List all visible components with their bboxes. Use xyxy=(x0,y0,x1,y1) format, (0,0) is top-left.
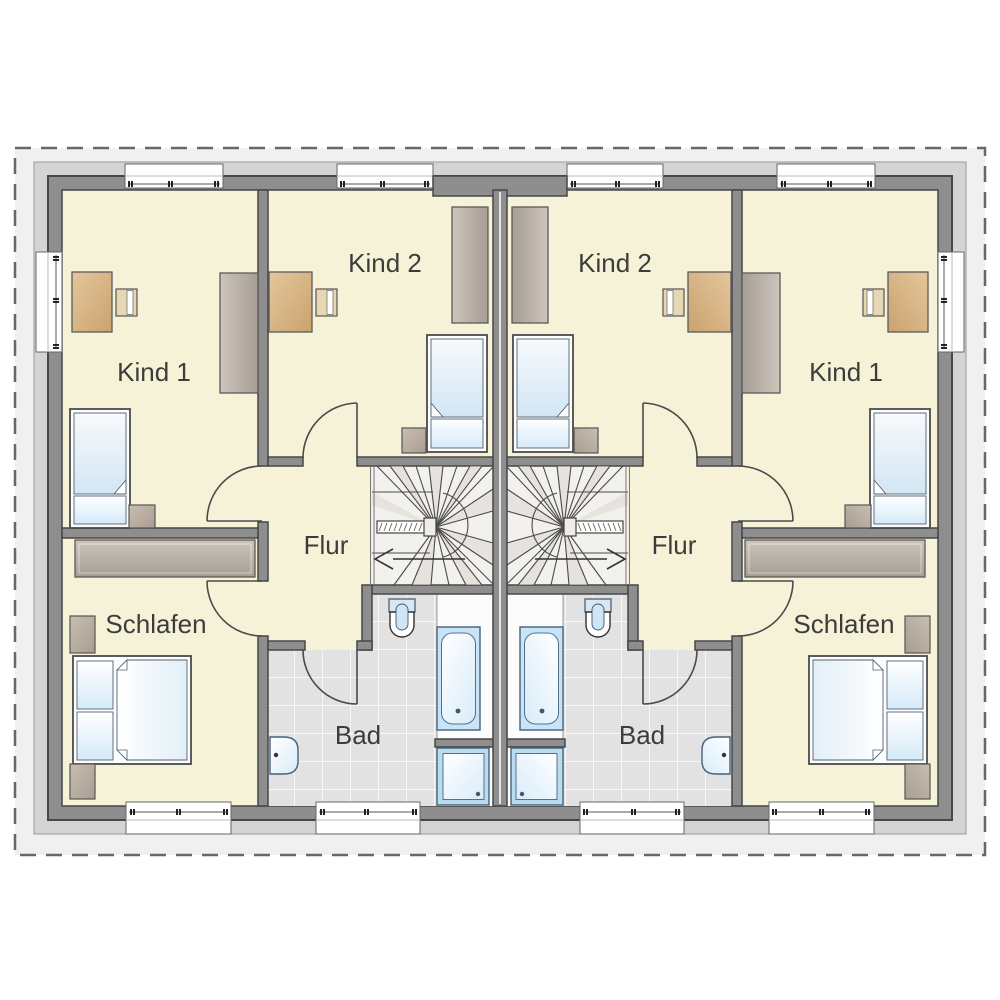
pillow xyxy=(77,661,113,709)
room-label-kind1-right: Kind 1 xyxy=(809,357,883,387)
room-label-schlafen-right: Schlafen xyxy=(793,609,894,639)
wardrobe-long xyxy=(75,540,255,577)
drain xyxy=(456,709,461,714)
room-label-bad-right: Bad xyxy=(619,720,665,750)
room-label-kind2-left: Kind 2 xyxy=(348,248,422,278)
single-bed xyxy=(70,409,130,528)
room-label-kind1-left: Kind 1 xyxy=(117,357,191,387)
desk-chair xyxy=(116,289,137,316)
bathtub xyxy=(437,627,480,730)
floor-plan-drawing: Kind 1 Kind 2 Flur Schlafen Bad Kind 2 K… xyxy=(0,0,1000,1000)
double-bed xyxy=(73,656,191,764)
room-label-flur-right: Flur xyxy=(652,530,697,560)
faucet xyxy=(274,753,278,757)
floor-plan-canvas: Kind 1 Kind 2 Flur Schlafen Bad Kind 2 K… xyxy=(0,0,1000,1000)
stair-handrail xyxy=(377,518,436,536)
room-label-schlafen-left: Schlafen xyxy=(105,609,206,639)
drain xyxy=(476,792,480,796)
wardrobe xyxy=(220,273,258,393)
desk-chair xyxy=(316,289,337,316)
desk xyxy=(269,272,312,332)
desk xyxy=(72,272,112,332)
window-left-kind1 xyxy=(36,252,62,352)
single-bed xyxy=(427,335,487,452)
duvet xyxy=(117,660,187,760)
nightstand xyxy=(70,764,95,799)
nightstand xyxy=(70,616,95,653)
toilet xyxy=(389,599,415,637)
shower xyxy=(437,748,489,805)
room-label-bad-left: Bad xyxy=(335,720,381,750)
room-label-kind2-right: Kind 2 xyxy=(578,248,652,278)
room-label-flur-left: Flur xyxy=(304,530,349,560)
sink xyxy=(270,737,298,774)
window-top-kind2 xyxy=(337,164,433,188)
pillow xyxy=(77,712,113,760)
window-bottom-bad xyxy=(316,802,420,834)
window-bottom-schlafen xyxy=(126,802,231,834)
nightstand xyxy=(402,428,426,453)
window-top-kind1 xyxy=(125,164,223,188)
nightstand xyxy=(129,505,155,528)
wardrobe xyxy=(452,207,488,323)
